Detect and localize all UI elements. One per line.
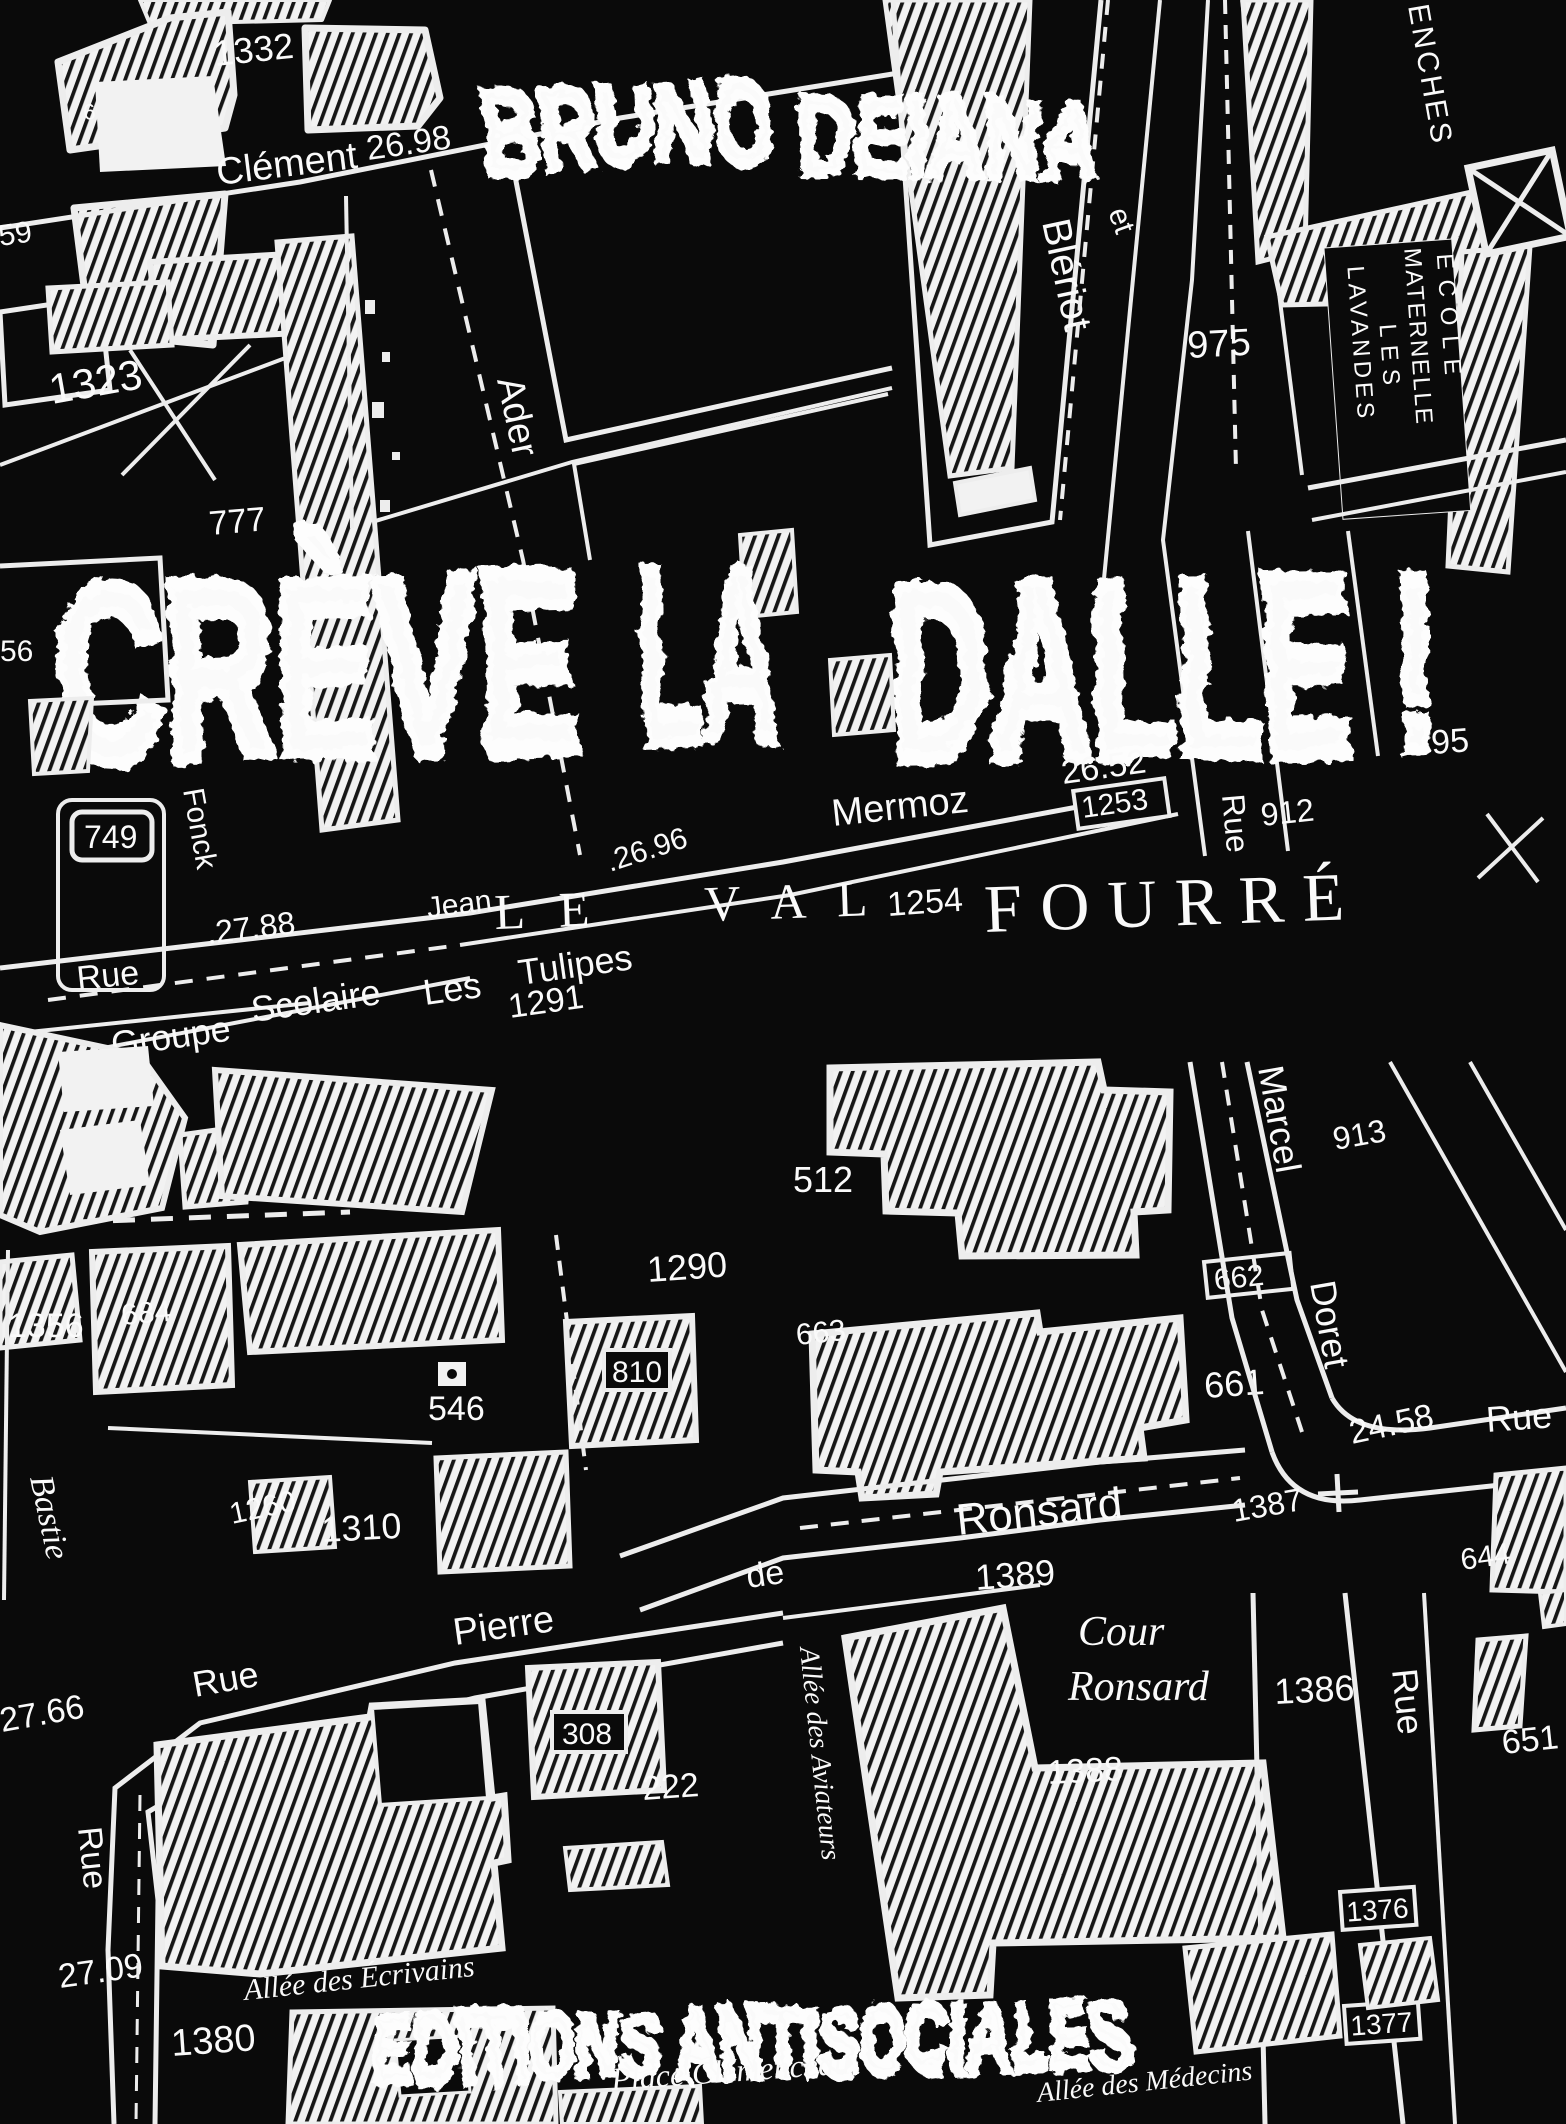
svg-text:56: 56 — [0, 635, 33, 668]
svg-text:V A L: V A L — [703, 870, 868, 932]
svg-text:1332: 1332 — [212, 25, 296, 74]
svg-text:F O U R R É: F O U R R É — [983, 858, 1345, 947]
svg-text:684: 684 — [120, 1295, 173, 1332]
svg-text:L E: L E — [493, 881, 590, 940]
svg-text:DALLE !: DALLE ! — [887, 523, 1440, 814]
svg-text:222: 222 — [641, 1766, 700, 1808]
svg-text:Rue: Rue — [1215, 792, 1256, 854]
svg-text:LA: LA — [634, 513, 781, 798]
svg-text:1356: 1356 — [8, 1307, 84, 1345]
svg-text:810: 810 — [612, 1356, 662, 1389]
svg-text:912: 912 — [1259, 792, 1316, 833]
svg-text:Les: Les — [420, 964, 483, 1013]
svg-text:1386: 1386 — [1273, 1667, 1355, 1712]
svg-text:1290: 1290 — [646, 1243, 729, 1289]
svg-text:1254: 1254 — [886, 881, 964, 924]
svg-text:512: 512 — [793, 1159, 853, 1200]
svg-text:Ronsard: Ronsard — [1067, 1664, 1210, 1710]
svg-text:644: 644 — [1458, 1537, 1512, 1577]
svg-text:546: 546 — [428, 1390, 485, 1428]
svg-text:Rue: Rue — [1384, 1667, 1432, 1737]
svg-text:Coll: Coll — [1179, 609, 1214, 657]
svg-text:CRÈVE: CRÈVE — [50, 521, 583, 816]
svg-text:651: 651 — [1500, 1718, 1560, 1762]
svg-text:1377: 1377 — [1349, 2006, 1413, 2041]
svg-text:749: 749 — [84, 819, 137, 855]
svg-text:BRUNO: BRUNO — [479, 58, 776, 196]
svg-text:59: 59 — [0, 216, 34, 253]
svg-text:1388: 1388 — [1046, 1750, 1124, 1792]
svg-text:Rue: Rue — [1485, 1394, 1554, 1440]
svg-text:975: 975 — [1186, 322, 1252, 367]
svg-text:Cour: Cour — [1078, 1609, 1165, 1655]
svg-text:DEIANA: DEIANA — [797, 73, 1099, 203]
svg-text:95: 95 — [1430, 721, 1470, 762]
svg-text:Rue: Rue — [70, 1825, 114, 1891]
svg-text:1310: 1310 — [320, 1505, 402, 1550]
svg-text:1376: 1376 — [1345, 1892, 1409, 1927]
svg-text:308: 308 — [562, 1718, 612, 1751]
svg-text:663: 663 — [794, 1314, 847, 1352]
svg-text:1380: 1380 — [170, 2017, 257, 2065]
svg-text:Rue: Rue — [75, 954, 141, 998]
svg-text:LES: LES — [1373, 323, 1405, 394]
svg-text:de: de — [744, 1553, 787, 1596]
